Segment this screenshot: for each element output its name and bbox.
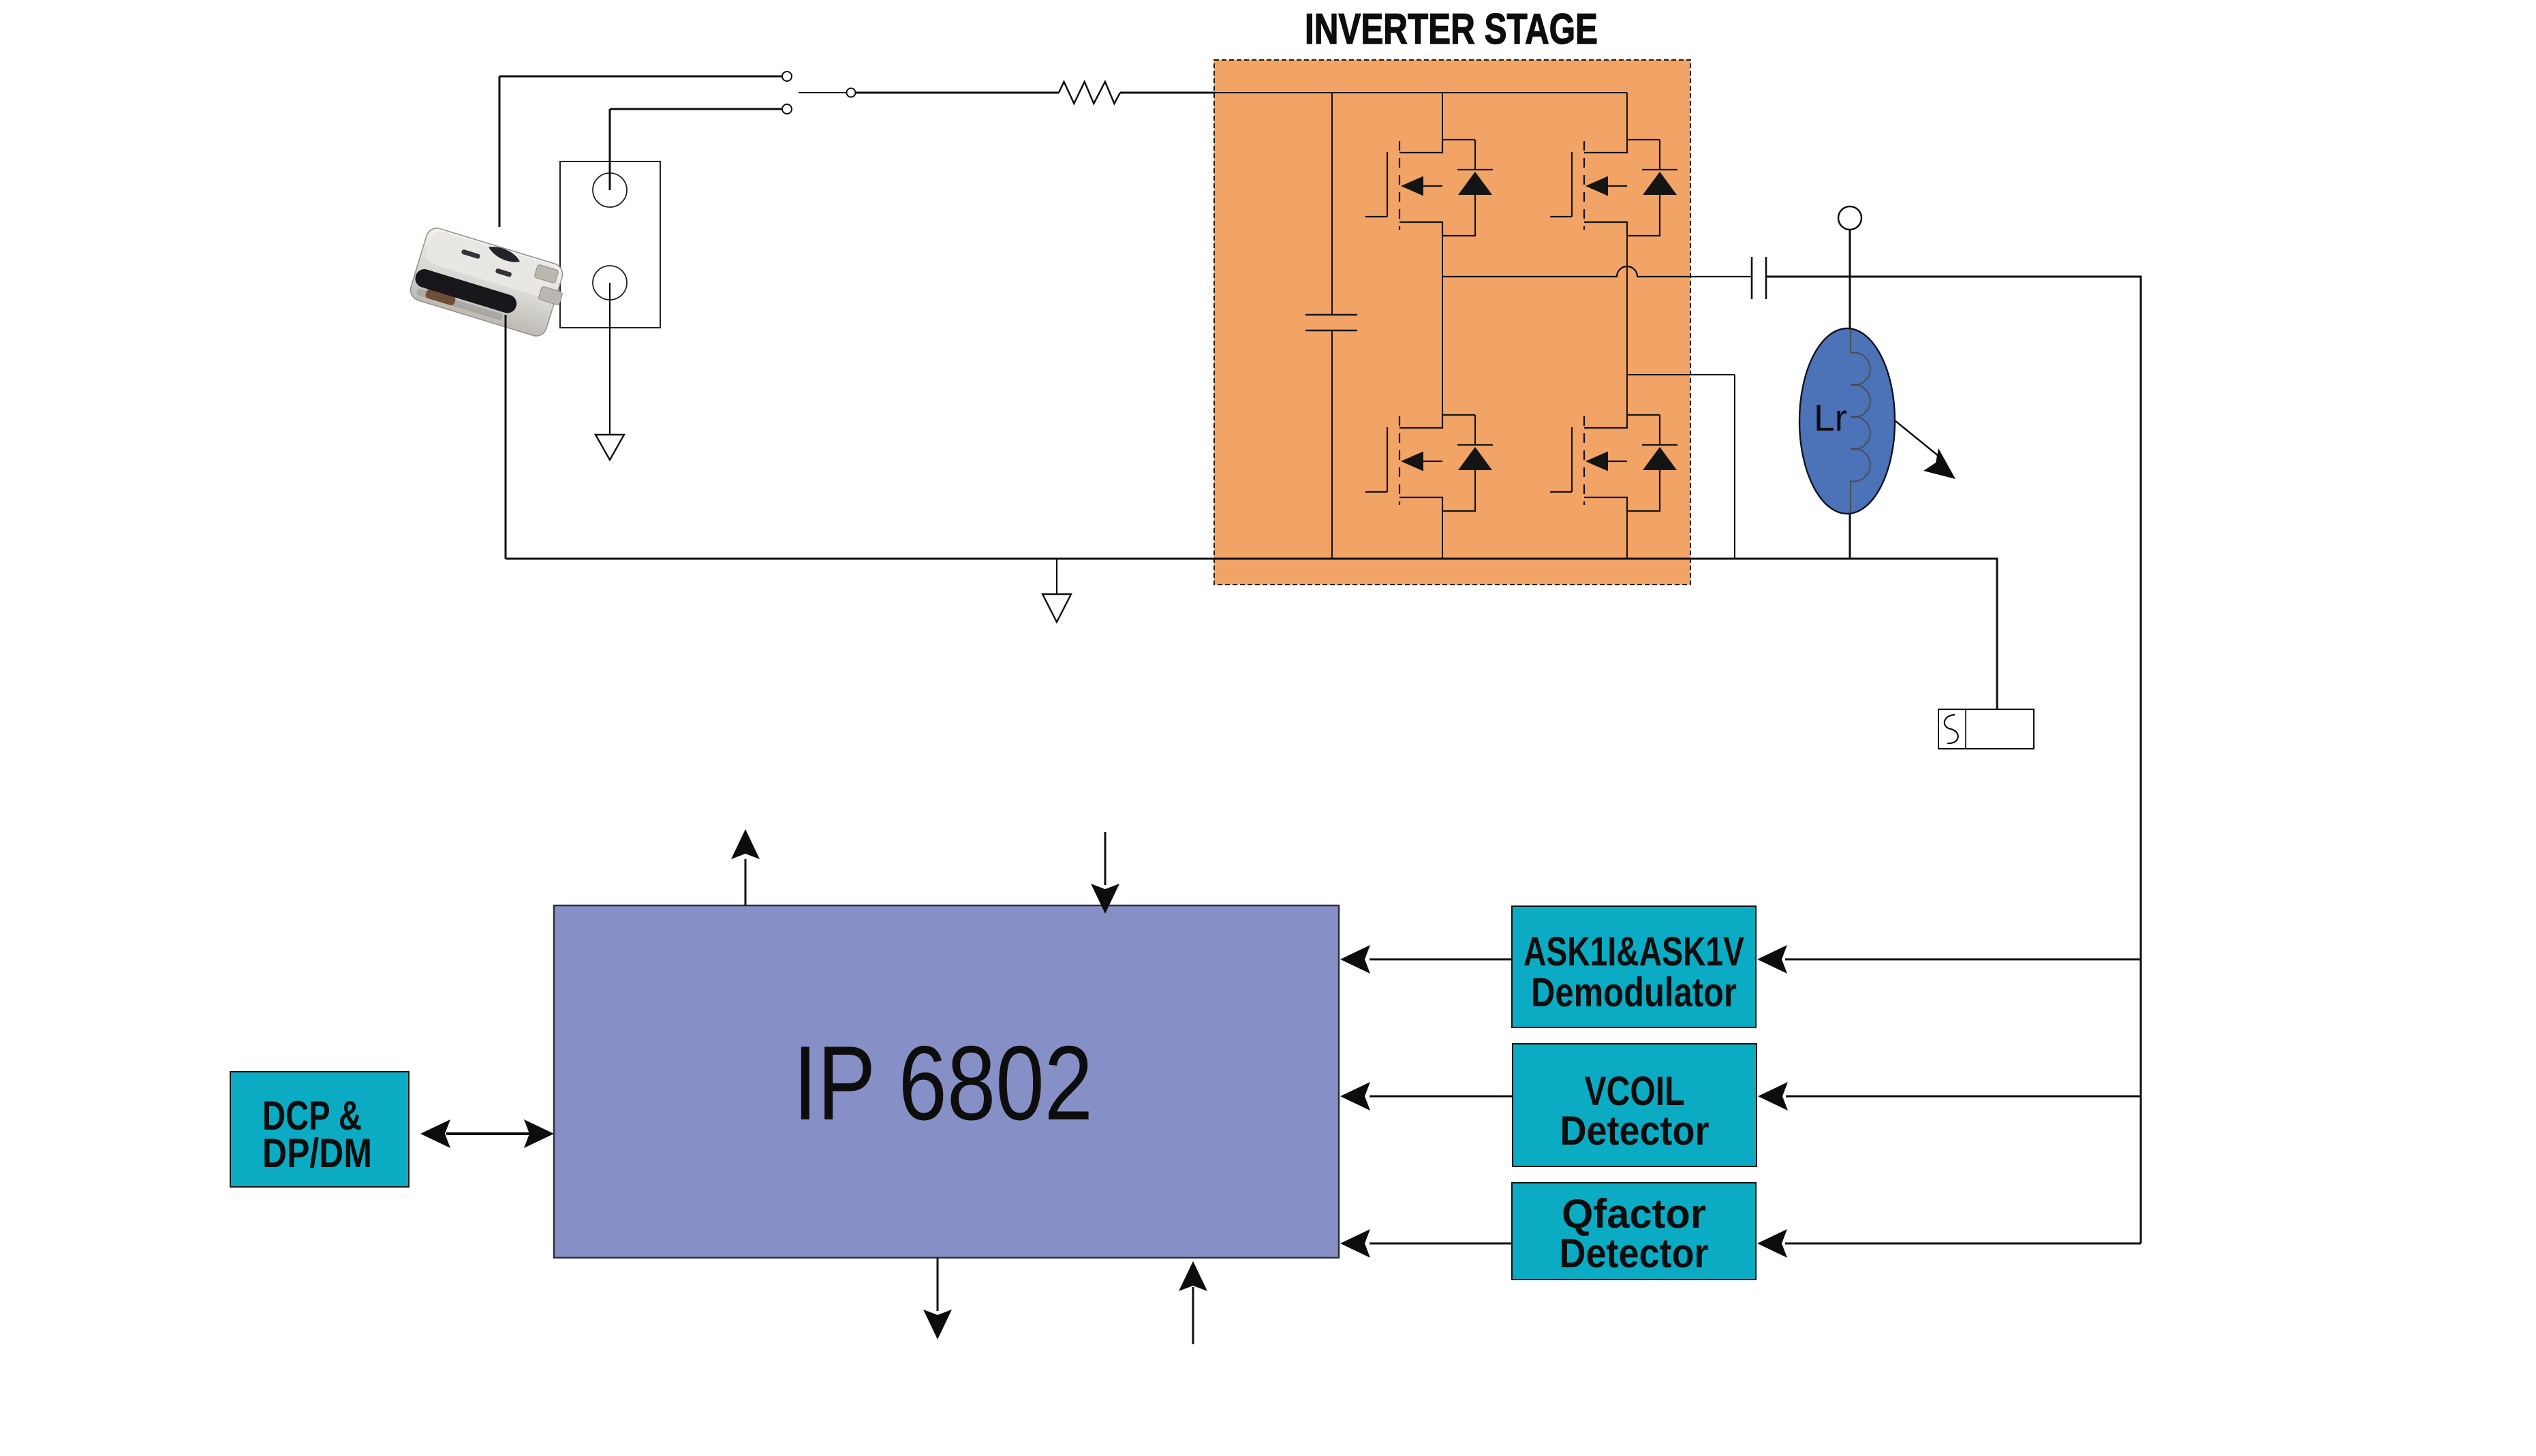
svg-text:ASK1I&ASK1V: ASK1I&ASK1V: [1524, 929, 1744, 974]
svg-text:Detector: Detector: [1560, 1108, 1710, 1153]
svg-text:IP 6802: IP 6802: [793, 1024, 1093, 1142]
svg-text:VCOIL: VCOIL: [1585, 1068, 1685, 1114]
svg-text:INVERTER STAGE: INVERTER STAGE: [1305, 5, 1598, 53]
svg-text:Detector: Detector: [1560, 1230, 1709, 1276]
svg-text:Qfactor: Qfactor: [1562, 1191, 1706, 1237]
svg-text:Demodulator: Demodulator: [1531, 970, 1737, 1015]
svg-text:Lr: Lr: [1814, 397, 1847, 439]
svg-text:DP/DM: DP/DM: [262, 1130, 372, 1176]
